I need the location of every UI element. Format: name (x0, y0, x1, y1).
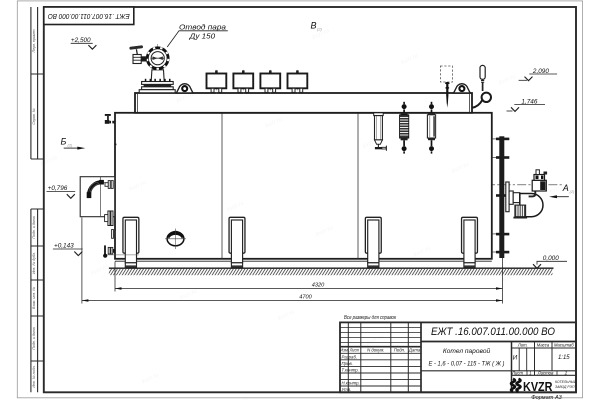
svg-text:Изм: Изм (340, 348, 348, 353)
svg-text:Лит.: Лит. (517, 342, 528, 347)
svg-text:Ду 150: Ду 150 (189, 31, 217, 40)
svg-text:Дата: Дата (408, 348, 421, 353)
svg-text:Разраб.: Разраб. (342, 354, 358, 359)
svg-text:Масса: Масса (537, 342, 550, 347)
svg-text:ЕЖТ .16.007.011.00.000 ВО: ЕЖТ .16.007.011.00.000 ВО (47, 12, 129, 21)
svg-text:Подп.: Подп. (394, 348, 405, 353)
svg-text:Формат А3: Формат А3 (531, 395, 562, 400)
svg-text:Б: Б (61, 137, 67, 147)
svg-text:Инв. № дубл.: Инв. № дубл. (32, 252, 36, 274)
svg-text:KVZR: KVZR (523, 379, 553, 394)
svg-text:Подп. и дата: Подп. и дата (32, 216, 36, 239)
svg-text:+0,143: +0,143 (54, 242, 74, 249)
svg-text:Взам. инв. №: Взам. инв. № (32, 287, 36, 309)
svg-text:КОТЕЛЬНЫЙ: КОТЕЛЬНЫЙ (555, 380, 577, 384)
svg-text:+0,796: +0,796 (48, 185, 68, 192)
svg-text:4320: 4320 (312, 282, 325, 288)
svg-text:ЗАВОД РЭП: ЗАВОД РЭП (555, 385, 575, 389)
svg-text:Инв. № подл.: Инв. № подл. (32, 365, 36, 387)
svg-text:Отвод пара: Отвод пара (179, 23, 226, 32)
svg-text:В: В (311, 21, 317, 31)
svg-text:Пров.: Пров. (342, 361, 353, 366)
svg-text:ЕЖТ .16.007.011.00.000 ВО: ЕЖТ .16.007.011.00.000 ВО (431, 326, 556, 338)
svg-text:Перв. примен.: Перв. примен. (32, 29, 36, 53)
svg-text:Справ. №: Справ. № (32, 108, 36, 124)
svg-text:Лист: Лист (511, 371, 523, 376)
svg-text:Е - 1,6 - 0,07 - 115 - ТЖ ( Ж: Е - 1,6 - 0,07 - 115 - ТЖ ( Ж ) (429, 360, 505, 367)
svg-text:Листов: Листов (537, 371, 554, 376)
svg-text:И: И (513, 355, 518, 362)
svg-text:(2): (2) (68, 143, 74, 148)
svg-text:Т.контр.: Т.контр. (342, 368, 359, 373)
svg-text:Подп. и дата: Подп. и дата (32, 327, 36, 350)
svg-text:Масштаб: Масштаб (554, 342, 574, 347)
svg-text:N докум.: N докум. (367, 348, 384, 353)
svg-text:Котел паровой: Котел паровой (443, 347, 491, 355)
svg-text:Н.контр.: Н.контр. (342, 381, 360, 386)
svg-text:Все размеры для справок: Все размеры для справок (344, 315, 396, 321)
svg-text:1:15: 1:15 (558, 355, 570, 361)
svg-text:Утв.: Утв. (342, 387, 352, 392)
svg-text:Лист: Лист (349, 348, 360, 353)
svg-text:0,000: 0,000 (543, 255, 559, 262)
svg-text:(2): (2) (570, 189, 576, 194)
svg-text:4700: 4700 (299, 294, 312, 300)
